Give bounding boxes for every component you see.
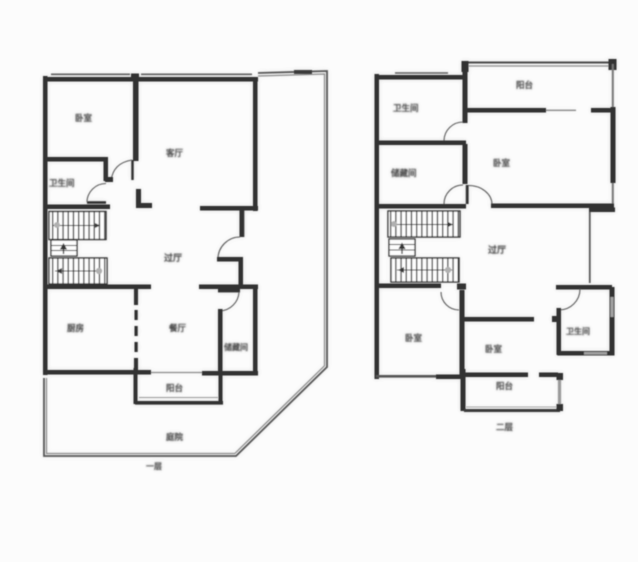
svg-text:储藏间: 储藏间	[390, 168, 417, 178]
svg-text:厨房: 厨房	[67, 323, 84, 333]
svg-text:阳台: 阳台	[496, 381, 514, 391]
svg-text:卫生间: 卫生间	[393, 103, 419, 113]
svg-text:过厅: 过厅	[488, 244, 506, 255]
svg-text:卧室: 卧室	[405, 333, 423, 343]
svg-text:储藏间: 储藏间	[223, 342, 248, 352]
svg-text:一层: 一层	[146, 462, 162, 471]
svg-text:庭院: 庭院	[166, 432, 184, 442]
svg-text:二层: 二层	[496, 422, 514, 432]
svg-text:阳台: 阳台	[516, 80, 534, 90]
svg-text:卧室: 卧室	[75, 113, 93, 123]
svg-text:餐厅: 餐厅	[168, 323, 187, 333]
svg-text:卫生间: 卫生间	[566, 326, 590, 336]
svg-text:卫生间: 卫生间	[49, 178, 75, 188]
svg-text:阳台: 阳台	[166, 383, 184, 393]
svg-text:卧室: 卧室	[485, 344, 503, 354]
svg-text:客厅: 客厅	[165, 148, 184, 158]
svg-text:过厅: 过厅	[164, 252, 182, 263]
svg-text:卧室: 卧室	[493, 158, 511, 168]
